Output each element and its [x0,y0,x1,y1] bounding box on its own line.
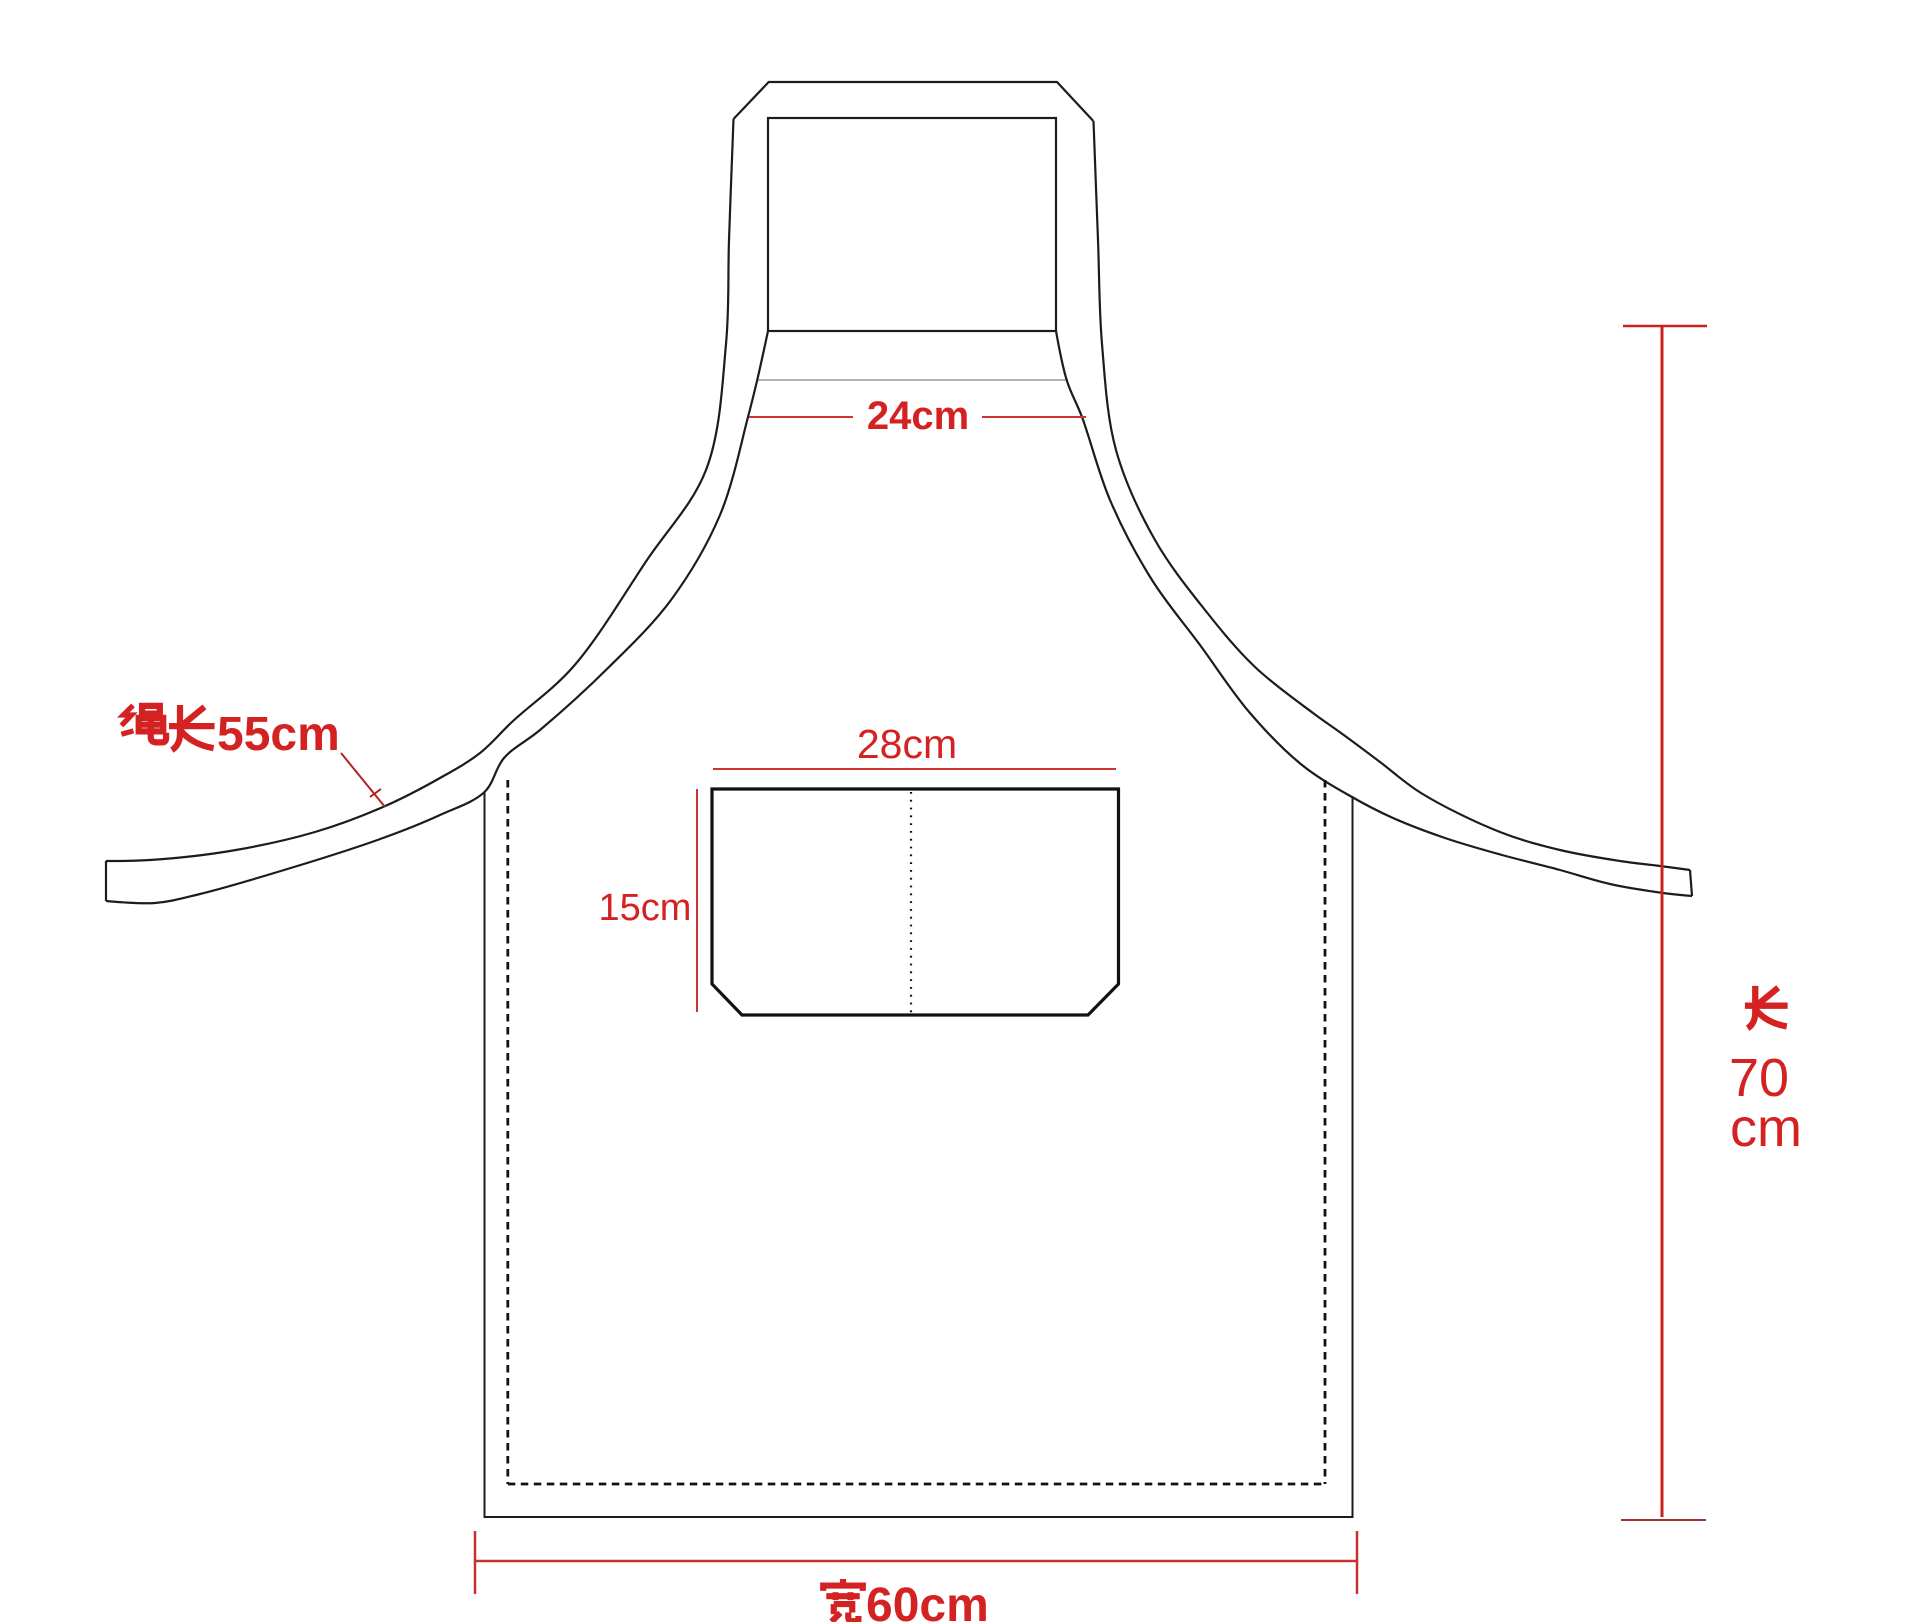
svg-text:cm: cm [1730,1098,1802,1158]
svg-text:24cm: 24cm [867,394,969,438]
svg-text:15cm: 15cm [599,887,692,929]
svg-text:28cm: 28cm [857,721,957,767]
svg-text:55cm: 55cm [217,708,340,761]
svg-text:60cm: 60cm [866,1579,989,1622]
